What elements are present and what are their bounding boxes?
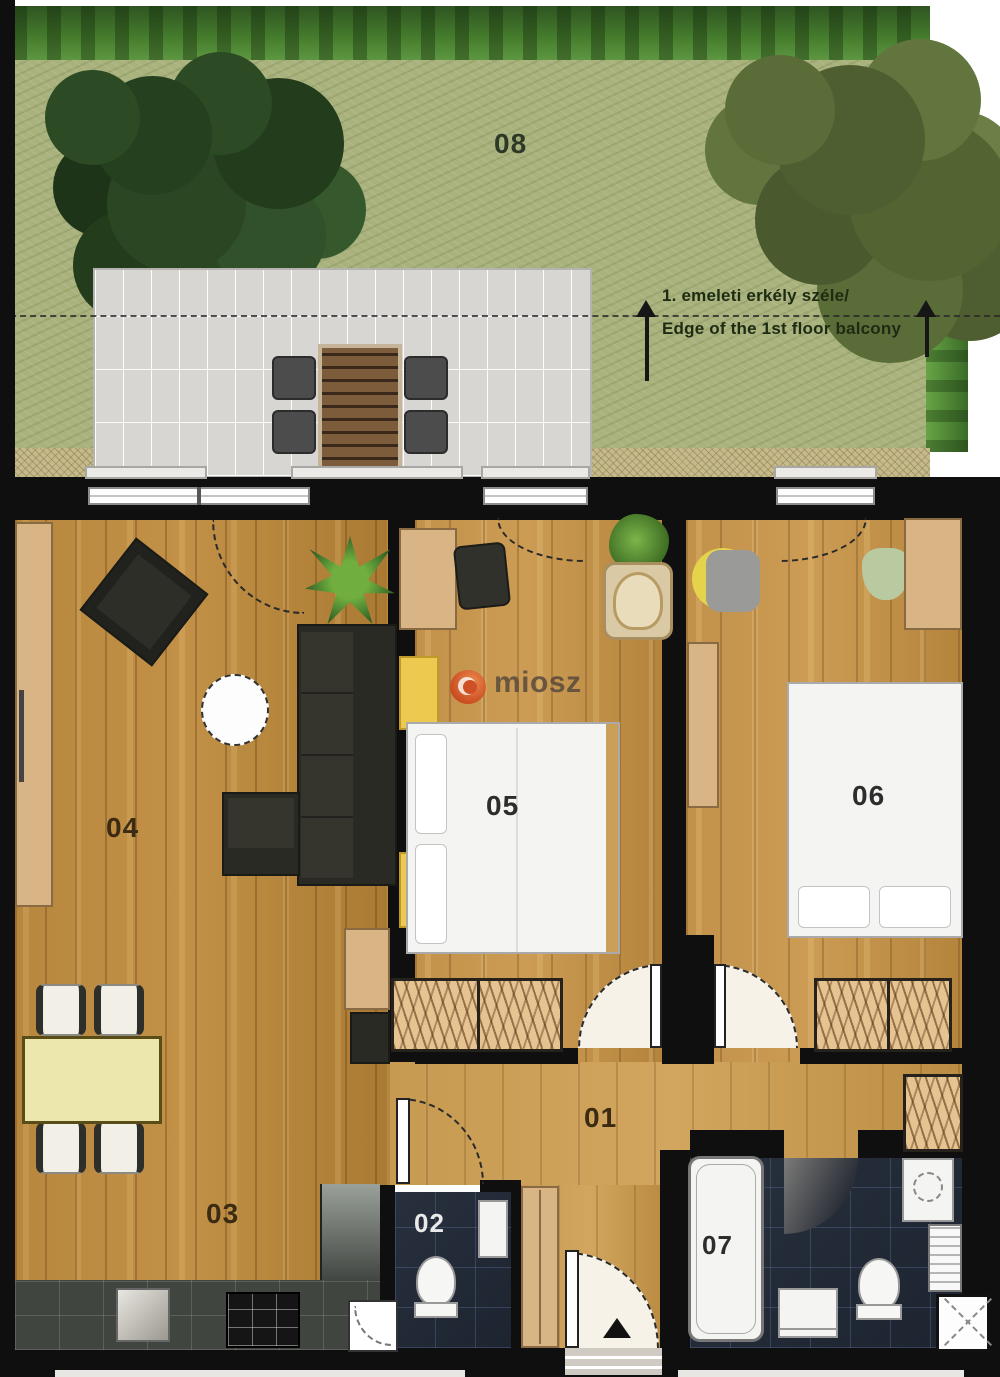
base-cabinet bbox=[348, 1300, 398, 1352]
tree-dark-icon bbox=[45, 70, 140, 165]
kitchen-counter-side bbox=[320, 1184, 380, 1284]
terrace-chair bbox=[272, 410, 316, 454]
cabinet-line bbox=[539, 1190, 541, 1344]
entrance-door-leaf bbox=[565, 1250, 579, 1348]
door-leaf-bedroom1 bbox=[650, 964, 662, 1048]
wall-corridor-bathroom bbox=[660, 1150, 690, 1348]
hall-closet bbox=[903, 1074, 963, 1152]
watermark-text: miosz bbox=[494, 666, 582, 700]
wc-door-leaf bbox=[396, 1098, 410, 1184]
desk-chair-bedroom1 bbox=[453, 541, 511, 610]
wall-stub-between-doors bbox=[662, 935, 714, 1064]
gravel-right bbox=[592, 448, 930, 478]
window-sill bbox=[291, 466, 463, 479]
window-sill bbox=[481, 466, 590, 479]
wc-toilet-bowl bbox=[416, 1256, 456, 1306]
balcony-measure-line bbox=[0, 315, 1000, 317]
terrace-chair bbox=[404, 410, 448, 454]
measure-arrow-left-stem bbox=[645, 317, 649, 381]
bath-sink-basin bbox=[913, 1172, 943, 1202]
dining-chair bbox=[94, 984, 144, 1036]
dining-chair bbox=[36, 984, 86, 1036]
garden-hedge-top bbox=[13, 6, 930, 60]
terrace-chair bbox=[404, 356, 448, 400]
watermark: miosz bbox=[450, 666, 610, 706]
wardrobe-strip-bedroom2 bbox=[687, 642, 719, 808]
dining-label: 03 bbox=[206, 1198, 239, 1230]
sofa-cushions bbox=[301, 632, 353, 878]
towel-radiator bbox=[928, 1224, 962, 1292]
desk-dining bbox=[344, 928, 390, 1010]
washer-panel bbox=[780, 1328, 836, 1330]
facade-line-right bbox=[678, 1370, 964, 1377]
garden-hedge-right bbox=[926, 62, 968, 452]
window-bedroom-2 bbox=[776, 487, 875, 505]
pillow bbox=[415, 844, 447, 944]
bedroom1-label: 05 bbox=[486, 790, 519, 822]
wc-toilet-tank bbox=[414, 1302, 458, 1318]
pillow bbox=[798, 886, 870, 928]
radiator-living bbox=[19, 690, 24, 782]
facade-line-left bbox=[55, 1370, 465, 1377]
bath-sink bbox=[902, 1158, 954, 1222]
sofa bbox=[297, 624, 397, 886]
wall-wc-corridor bbox=[511, 1185, 521, 1348]
wc-sink bbox=[478, 1200, 508, 1258]
corridor-cabinet bbox=[521, 1186, 559, 1348]
sofa-chaise bbox=[222, 792, 300, 876]
round-table bbox=[201, 674, 269, 746]
gravel-left bbox=[13, 448, 93, 478]
desk-bedroom1 bbox=[399, 528, 457, 630]
wardrobe-divider bbox=[887, 981, 890, 1049]
pillow bbox=[415, 734, 447, 834]
kitchen-sink bbox=[116, 1288, 170, 1342]
stove bbox=[226, 1292, 300, 1348]
dining-chair bbox=[36, 1122, 86, 1174]
accent-chair-seat bbox=[706, 550, 760, 612]
annotation-line1: 1. emeleti erkély széle/ bbox=[662, 286, 849, 306]
bath-toilet-tank bbox=[856, 1304, 902, 1320]
pillow bbox=[879, 886, 951, 928]
annotation-line2: Edge of the 1st floor balcony bbox=[662, 319, 901, 339]
nightstand bbox=[399, 656, 439, 730]
wall-exterior-left bbox=[0, 0, 15, 1377]
washing-machine bbox=[778, 1288, 838, 1338]
entrance-threshold bbox=[565, 1348, 662, 1375]
hall-label: 01 bbox=[584, 1102, 617, 1134]
desk-bedroom2 bbox=[904, 518, 962, 630]
garden-label: 08 bbox=[494, 128, 527, 160]
desk-chair-dining bbox=[350, 1012, 390, 1064]
cabinet-door-arc bbox=[354, 1306, 392, 1346]
dining-table bbox=[22, 1036, 162, 1124]
measure-arrow-right-stem bbox=[925, 317, 929, 357]
living-label: 04 bbox=[106, 812, 139, 844]
dining-chair bbox=[94, 1122, 144, 1174]
window-sill bbox=[774, 466, 877, 479]
door-leaf-bedroom2 bbox=[714, 964, 726, 1048]
bathroom-label: 07 bbox=[702, 1230, 733, 1261]
wall-bathroom-top-left bbox=[690, 1130, 784, 1158]
wardrobe-bedroom1 bbox=[391, 978, 563, 1052]
duvet-fold bbox=[516, 728, 518, 952]
kitchen-counter bbox=[15, 1280, 380, 1350]
wardrobe-bedroom2 bbox=[814, 978, 952, 1052]
measure-arrow-right-icon bbox=[916, 300, 936, 317]
entrance-arrow-icon bbox=[603, 1318, 631, 1338]
wicker-chair-seat bbox=[613, 572, 663, 630]
wc-label: 02 bbox=[414, 1208, 445, 1239]
bed-bedroom1 bbox=[406, 722, 620, 954]
bedroom2-label: 06 bbox=[852, 780, 885, 812]
window-bedroom-1 bbox=[483, 487, 588, 505]
window-sill bbox=[85, 466, 207, 479]
tree-olive-icon bbox=[725, 55, 835, 165]
wall-exterior-right bbox=[962, 477, 1000, 1377]
watermark-logo-icon bbox=[450, 670, 486, 704]
measure-arrow-left-icon bbox=[636, 300, 656, 317]
terrace-table bbox=[318, 344, 402, 474]
terrace-chair bbox=[272, 356, 316, 400]
sofa-chaise-cushion bbox=[228, 798, 294, 848]
window-mullion bbox=[197, 487, 201, 505]
floor-plan: 1. emeleti erkély széle/ Edge of the 1st… bbox=[0, 0, 1000, 1377]
bath-toilet-bowl bbox=[858, 1258, 900, 1310]
wicker-chair bbox=[603, 562, 673, 640]
shower-tray bbox=[936, 1294, 990, 1352]
watermark-logo-swirl-core bbox=[463, 680, 477, 694]
bed-footboard bbox=[606, 724, 618, 952]
garden-right-margin bbox=[968, 0, 1000, 477]
wardrobe-divider bbox=[477, 981, 480, 1049]
